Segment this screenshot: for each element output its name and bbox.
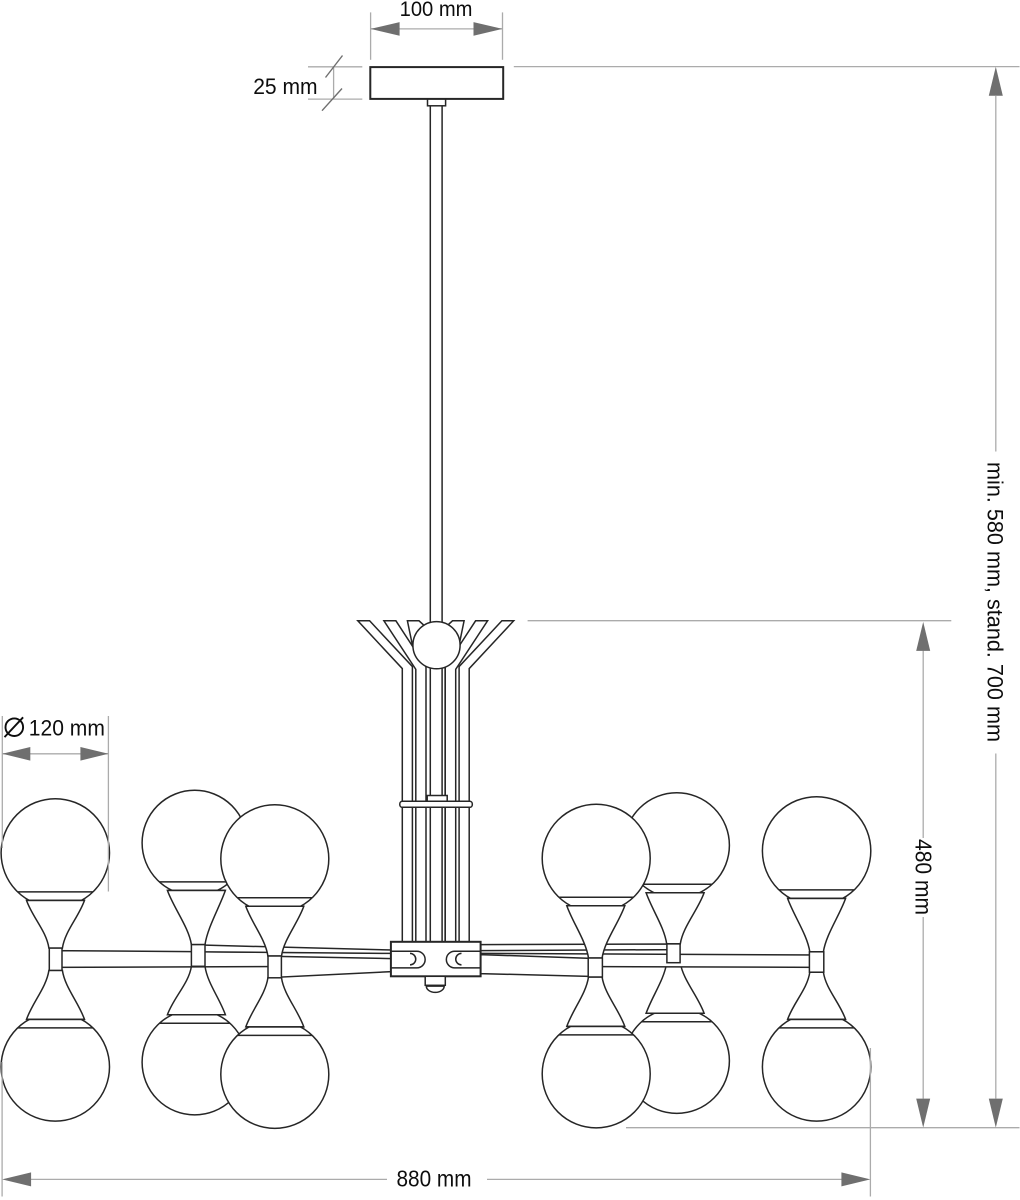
svg-text:100 mm: 100 mm: [400, 0, 473, 21]
svg-text:120 mm: 120 mm: [29, 716, 105, 741]
svg-text:25 mm: 25 mm: [253, 74, 317, 99]
svg-text:min. 580 mm, stand. 700 mm: min. 580 mm, stand. 700 mm: [983, 462, 1008, 742]
svg-text:880 mm: 880 mm: [397, 1165, 472, 1191]
svg-text:480 mm: 480 mm: [911, 839, 937, 915]
